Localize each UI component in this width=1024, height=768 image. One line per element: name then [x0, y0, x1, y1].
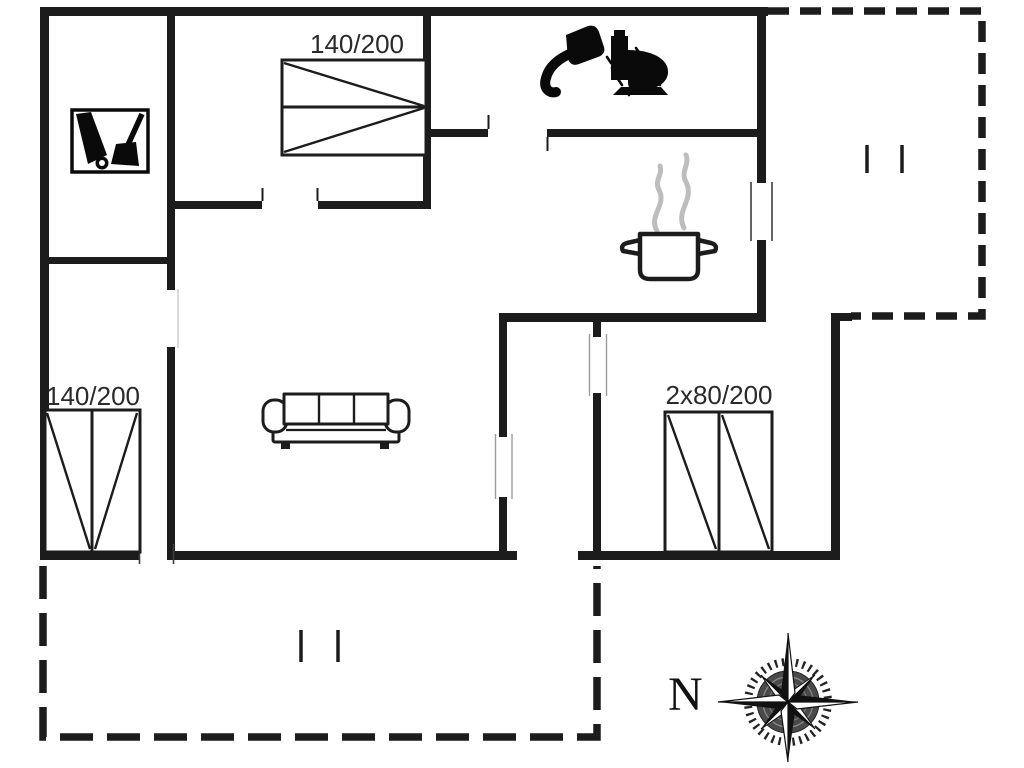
wall-interior-A2: [167, 347, 175, 560]
bed-size-label-bottom-left: 140/200: [21, 383, 165, 409]
cleaning-equipment-icon: [72, 110, 148, 172]
wall-interior-H: [499, 313, 766, 322]
bed-size-label-bottom-right: 2x80/200: [647, 382, 791, 408]
sofa-cushions: [284, 394, 388, 424]
bed-size-label-top: 140/200: [285, 31, 429, 57]
double-bed-bottom-right-icon: [665, 412, 772, 552]
wall-interior-E1: [431, 129, 488, 137]
toilet-tank: [611, 36, 628, 80]
sofa-foot: [281, 442, 290, 449]
compass-north-label: N: [668, 671, 703, 719]
wall-interior-F2: [499, 497, 507, 552]
toilet-base: [613, 87, 668, 95]
wall-right-lower-stub: [831, 313, 852, 321]
double-bed-top-icon: [282, 60, 426, 155]
wall-bottom-2: [174, 551, 517, 560]
floor-plan-canvas: 140/200 140/200 2x80/200 N: [0, 0, 1024, 768]
wall-right-upper-1: [757, 7, 766, 183]
wall-interior-A1: [167, 7, 175, 290]
wall-interior-G1: [593, 313, 601, 337]
double-bed-bottom-left-icon: [45, 410, 140, 552]
sofa-icon: [263, 394, 409, 449]
wall-interior-G2: [593, 393, 601, 552]
wall-interior-C1: [167, 201, 262, 209]
vacuum-wheel-hub: [99, 160, 105, 166]
sofa-foot: [380, 442, 389, 449]
pot-body: [640, 234, 698, 279]
wall-top: [40, 7, 768, 16]
wall-interior-F1: [499, 313, 507, 437]
wall-right-upper-2: [757, 240, 766, 322]
wall-interior-C2: [318, 201, 431, 209]
wall-interior-B: [48, 257, 168, 264]
wall-right-lower: [831, 313, 840, 560]
toilet-lid-tab: [614, 30, 625, 37]
wall-interior-E2: [547, 129, 757, 137]
